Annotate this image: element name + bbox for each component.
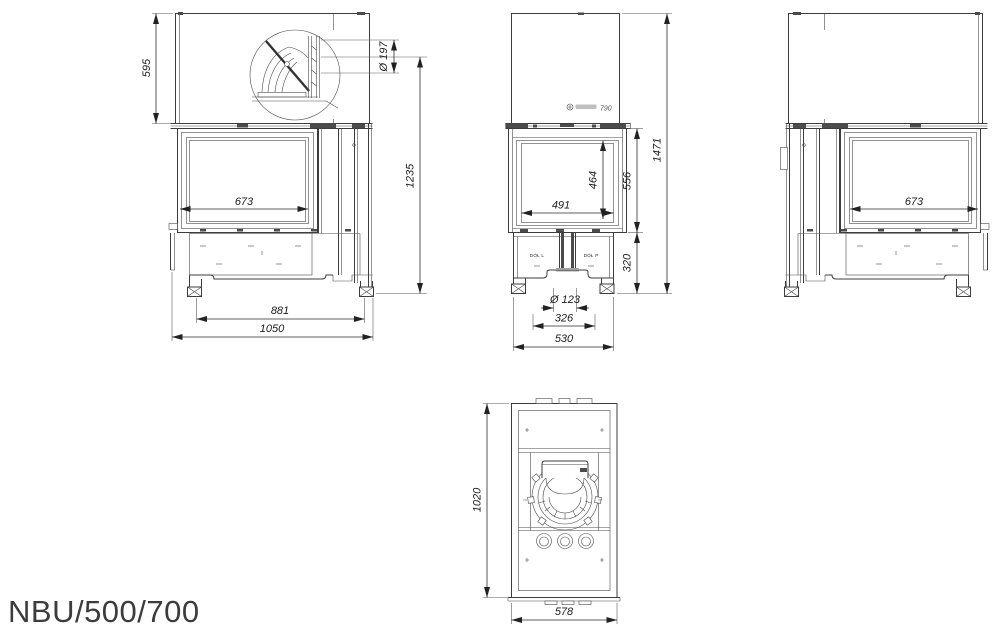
top-view: 1020 578 <box>472 399 621 625</box>
dim-outlet-diameter-label: Ø 123 <box>549 294 581 306</box>
dim-outlet-spacing: 326 <box>533 313 595 331</box>
dim-base-height: 320 <box>617 233 672 294</box>
dim-total-height: 1471 <box>622 14 672 294</box>
outlet-left-label: DÓŁ L <box>530 252 545 258</box>
front-base: DÓŁ L DÓŁ P <box>512 229 615 294</box>
left-side-view: Ø 197 595 673 1235 881 <box>141 12 427 341</box>
drawing-sheet: Ø 197 595 673 1235 881 <box>0 0 999 638</box>
dim-glass-width-front: 491 <box>522 200 614 214</box>
dim-body-width: 578 <box>512 603 618 624</box>
dim-feet-depth-label: 881 <box>271 305 289 317</box>
dim-glass-height: 464 <box>588 141 604 220</box>
dim-hood-height-label: 595 <box>141 58 153 77</box>
dim-total-height-label: 1471 <box>652 138 664 162</box>
dim-feet-depth: 881 <box>197 298 365 323</box>
right-side-view: 673 <box>781 12 990 297</box>
dim-glass-width-side: 673 <box>180 196 308 209</box>
dim-glass-width-right-label: 673 <box>905 196 924 208</box>
dim-hood-height: 595 <box>141 14 173 124</box>
dim-body-depth-label: 1020 <box>472 487 484 512</box>
dim-glass-height-label: 464 <box>588 171 600 189</box>
rear-mount-bracket <box>781 148 788 170</box>
model-label: NBU/500/700 <box>8 594 200 629</box>
dim-flue-diameter-label: Ø 197 <box>378 41 390 73</box>
dim-body-width-label: 578 <box>555 606 574 618</box>
dim-body-depth: 1020 <box>472 404 510 598</box>
dim-total-depth-label: 1050 <box>260 323 285 335</box>
dim-firebox-height-label: 556 <box>622 171 634 190</box>
dim-height-without-hood-label: 1235 <box>405 163 417 188</box>
dim-outlet-spacing-label: 326 <box>555 313 574 325</box>
dim-glass-width-front-label: 491 <box>552 200 570 212</box>
dim-base-height-label: 320 <box>622 253 634 272</box>
dim-outlet-diameter: Ø 123 <box>541 288 589 312</box>
outlet-right-label: DÓŁ P <box>584 252 599 258</box>
dim-glass-width-side-label: 673 <box>235 196 254 208</box>
air-inlet-rings <box>537 534 594 549</box>
dim-height-without-hood: 1235 <box>376 57 427 294</box>
glass-marking: 790 <box>567 104 612 113</box>
flue-collar <box>528 461 602 530</box>
drawing-canvas: Ø 197 595 673 1235 881 <box>0 0 999 638</box>
dim-glass-width-right: 673 <box>850 196 978 209</box>
dim-firebox-height: 556 <box>622 129 644 233</box>
damper-detail-bubble <box>250 30 340 120</box>
front-view: 790 491 464 <box>506 13 673 352</box>
glass-marking-label: 790 <box>600 106 612 113</box>
dim-base-width-label: 530 <box>555 333 574 345</box>
